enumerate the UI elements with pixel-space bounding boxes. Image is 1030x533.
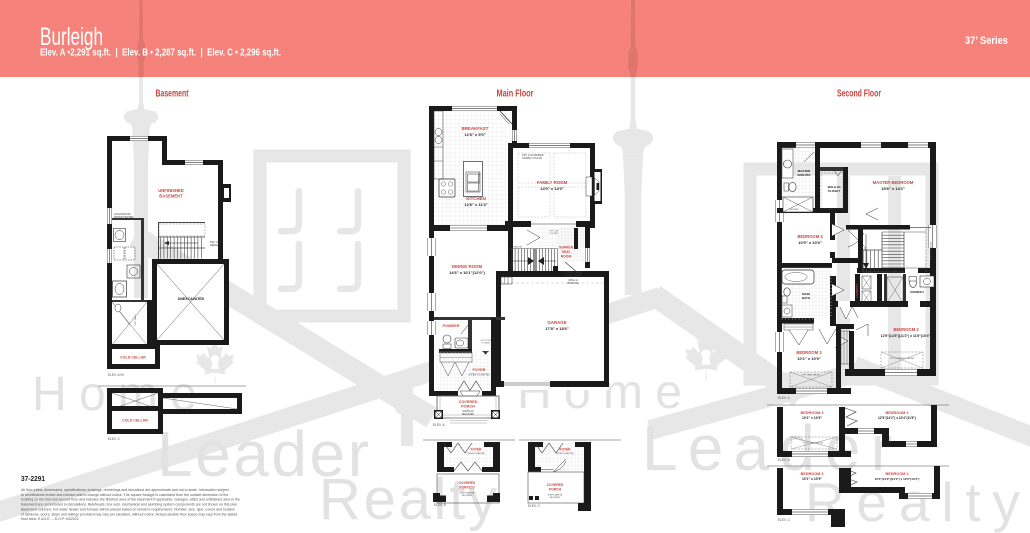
svg-text:PORCH: PORCH	[461, 405, 475, 409]
svg-text:RAILING: RAILING	[514, 246, 523, 249]
svg-text:15'6" x 14'2": 15'6" x 14'2"	[881, 186, 905, 191]
svg-text:ELEV. B: ELEV. B	[778, 458, 790, 462]
svg-text:12'6" x 11'4": 12'6" x 11'4"	[464, 202, 487, 207]
svg-text:FAMILY ROOM: FAMILY ROOM	[537, 180, 568, 185]
svg-text:Second Floor: Second Floor	[837, 88, 881, 100]
svg-text:37-2291: 37-2291	[21, 474, 45, 483]
svg-text:12'6" x 9'0": 12'6" x 9'0"	[464, 132, 485, 137]
svg-text:OPEN TO BELOW: OPEN TO BELOW	[931, 241, 933, 260]
svg-text:COLD CELLAR: COLD CELLAR	[122, 419, 148, 423]
svg-text:HEIGHT: HEIGHT	[210, 243, 220, 247]
svg-text:10'1" x 10'9": 10'1" x 10'9"	[797, 356, 821, 361]
svg-text:REQUIRED: REQUIRED	[462, 414, 474, 416]
svg-text:REQUIRED: REQUIRED	[462, 495, 473, 497]
svg-text:FOYER: FOYER	[471, 448, 483, 452]
svg-text:UNFINISHED: UNFINISHED	[158, 188, 184, 193]
svg-text:ELEV. C: ELEV. C	[778, 518, 791, 522]
svg-text:10'1" x 10'9": 10'1" x 10'9"	[802, 416, 822, 420]
svg-text:basement are not included in c: basement are not included in calculation…	[21, 503, 238, 507]
svg-text:OPT. TRAY CEILING: OPT. TRAY CEILING	[805, 442, 824, 445]
svg-text:BEDROOM 2: BEDROOM 2	[893, 327, 919, 332]
svg-text:FOYER: FOYER	[472, 368, 485, 372]
svg-text:17'8" x 18'6": 17'8" x 18'6"	[545, 326, 569, 331]
svg-text:12'5"(14'3")(11'2") x 12'0"(10: 12'5"(14'3")(11'2") x 12'0"(10'4")	[875, 477, 920, 481]
svg-text:DINING ROOM: DINING ROOM	[452, 264, 483, 269]
svg-text:WATER HEATER: WATER HEATER	[114, 216, 134, 219]
svg-text:SHOWER: SHOWER	[790, 209, 800, 211]
svg-text:CARPET (TILE IN): CARPET (TILE IN)	[522, 157, 542, 160]
svg-text:All floor plans, dimensions, s: All floor plans, dimensions, specificati…	[21, 488, 229, 492]
svg-text:SUNKEN: SUNKEN	[559, 246, 574, 250]
svg-text:12'5"(14'2") x 10'4"(11'6"): 12'5"(14'2") x 10'4"(11'6")	[878, 416, 916, 420]
svg-text:SHOWER 2: SHOWER 2	[910, 290, 924, 294]
svg-text:MUD: MUD	[562, 250, 570, 254]
svg-text:BEDROOM 3: BEDROOM 3	[801, 472, 824, 476]
svg-text:3 PC. BATH: 3 PC. BATH	[134, 314, 137, 326]
svg-text:BEDROOM 2: BEDROOM 2	[886, 472, 909, 476]
svg-text:OPT. SINK: OPT. SINK	[861, 272, 872, 274]
svg-text:ELEV. A: ELEV. A	[433, 423, 445, 427]
svg-text:CONC. CURB: CONC. CURB	[565, 275, 581, 278]
svg-text:Main Floor: Main Floor	[497, 88, 534, 100]
svg-text:LIN.: LIN.	[893, 271, 898, 274]
svg-text:Elev. A •2,291 sq.ft. | Elev: Elev. A •2,291 sq.ft. | Elev. B • 2,287 …	[40, 47, 281, 59]
svg-text:BRKF. BAR: BRKF. BAR	[478, 172, 481, 184]
svg-text:PORCH: PORCH	[549, 488, 562, 492]
svg-text:COVERED: COVERED	[459, 400, 478, 404]
svg-text:10'0" x 10'0": 10'0" x 10'0"	[798, 240, 822, 245]
svg-text:BEDROOM 3: BEDROOM 3	[796, 350, 822, 355]
svg-text:LAUNDRY: LAUNDRY	[855, 284, 859, 299]
svg-text:MASTER BEDROOM: MASTER BEDROOM	[873, 180, 914, 185]
svg-text:TO BSMT.: TO BSMT.	[481, 343, 491, 345]
svg-text:10'1" x 10'9": 10'1" x 10'9"	[802, 477, 822, 481]
svg-text:COVERED: COVERED	[547, 483, 564, 487]
svg-text:GARAGE: GARAGE	[547, 320, 566, 325]
svg-text:FOYER: FOYER	[560, 448, 572, 452]
svg-text:BEDROOM 2: BEDROOM 2	[886, 411, 909, 415]
svg-text:Basement columns, hot water he: Basement columns, hot water heater and f…	[21, 507, 235, 511]
svg-text:to architectural review and re: to architectural review and revision and…	[21, 493, 228, 497]
svg-text:BEDROOM 4: BEDROOM 4	[797, 234, 823, 239]
svg-text:REQUIRED: REQUIRED	[550, 497, 561, 499]
svg-text:Basement: Basement	[156, 88, 189, 100]
svg-text:Realty: Realty	[319, 467, 497, 532]
svg-text:(OPEN TO ABOVE): (OPEN TO ABOVE)	[467, 452, 485, 455]
svg-text:BASEMENT: BASEMENT	[159, 194, 183, 199]
svg-text:BATH: BATH	[802, 296, 810, 300]
svg-text:CLOSET: CLOSET	[828, 189, 840, 193]
svg-text:ELEV. C: ELEV. C	[108, 437, 121, 441]
svg-text:CLOSET: CLOSET	[550, 233, 559, 235]
svg-text:OPT. COFFERED CEILING: OPT. COFFERED CEILING	[890, 358, 915, 360]
svg-text:floor area. E.&O.E. – D.O.P. 0: floor area. E.&O.E. – D.O.P. 04/2022	[21, 517, 79, 521]
svg-text:COLD CELLAR: COLD CELLAR	[120, 356, 146, 360]
svg-text:ELEV. C: ELEV. C	[528, 504, 541, 508]
svg-text:(OPEN TO ABOVE): (OPEN TO ABOVE)	[556, 452, 574, 455]
svg-text:DN: DN	[865, 246, 867, 250]
svg-text:POWDER: POWDER	[442, 324, 459, 328]
svg-text:ELEV. A+B: ELEV. A+B	[108, 373, 124, 377]
svg-text:ELEV. B: ELEV. B	[434, 503, 446, 507]
svg-text:OPT. TRAY CEILING: OPT. TRAY CEILING	[802, 374, 821, 377]
svg-text:COVERED: COVERED	[459, 481, 476, 485]
svg-text:PORTICO: PORTICO	[459, 486, 475, 490]
svg-text:WINDOW): WINDOW)	[567, 282, 578, 285]
svg-text:ELEV. A: ELEV. A	[778, 396, 790, 400]
svg-text:building on the first and seco: building on the first and second floor a…	[21, 498, 240, 502]
svg-text:KITCHEN: KITCHEN	[466, 196, 486, 201]
svg-text:BREAKFAST: BREAKFAST	[462, 126, 489, 131]
svg-text:14'6" x 10'1"(12'0"): 14'6" x 10'1"(12'0")	[449, 270, 485, 275]
svg-text:12'5"(14'3")(11'2") x 11'6"(10: 12'5"(14'3")(11'2") x 11'6"(10'4")	[881, 334, 932, 338]
svg-text:of windows, doors, steps and r: of windows, doors, steps and railings pr…	[21, 512, 237, 516]
svg-text:(OPEN TO ABOVE): (OPEN TO ABOVE)	[468, 374, 489, 377]
svg-text:UNEXCAVATED: UNEXCAVATED	[178, 297, 205, 301]
svg-text:37’ Series: 37’ Series	[965, 35, 1008, 47]
svg-text:14'0" x 14'0": 14'0" x 14'0"	[540, 186, 564, 191]
svg-text:STEPS AS: STEPS AS	[462, 410, 474, 413]
svg-text:BEDROOM 3: BEDROOM 3	[801, 411, 824, 415]
svg-text:ENSUITE: ENSUITE	[797, 173, 810, 177]
svg-text:ROOM: ROOM	[561, 255, 572, 259]
